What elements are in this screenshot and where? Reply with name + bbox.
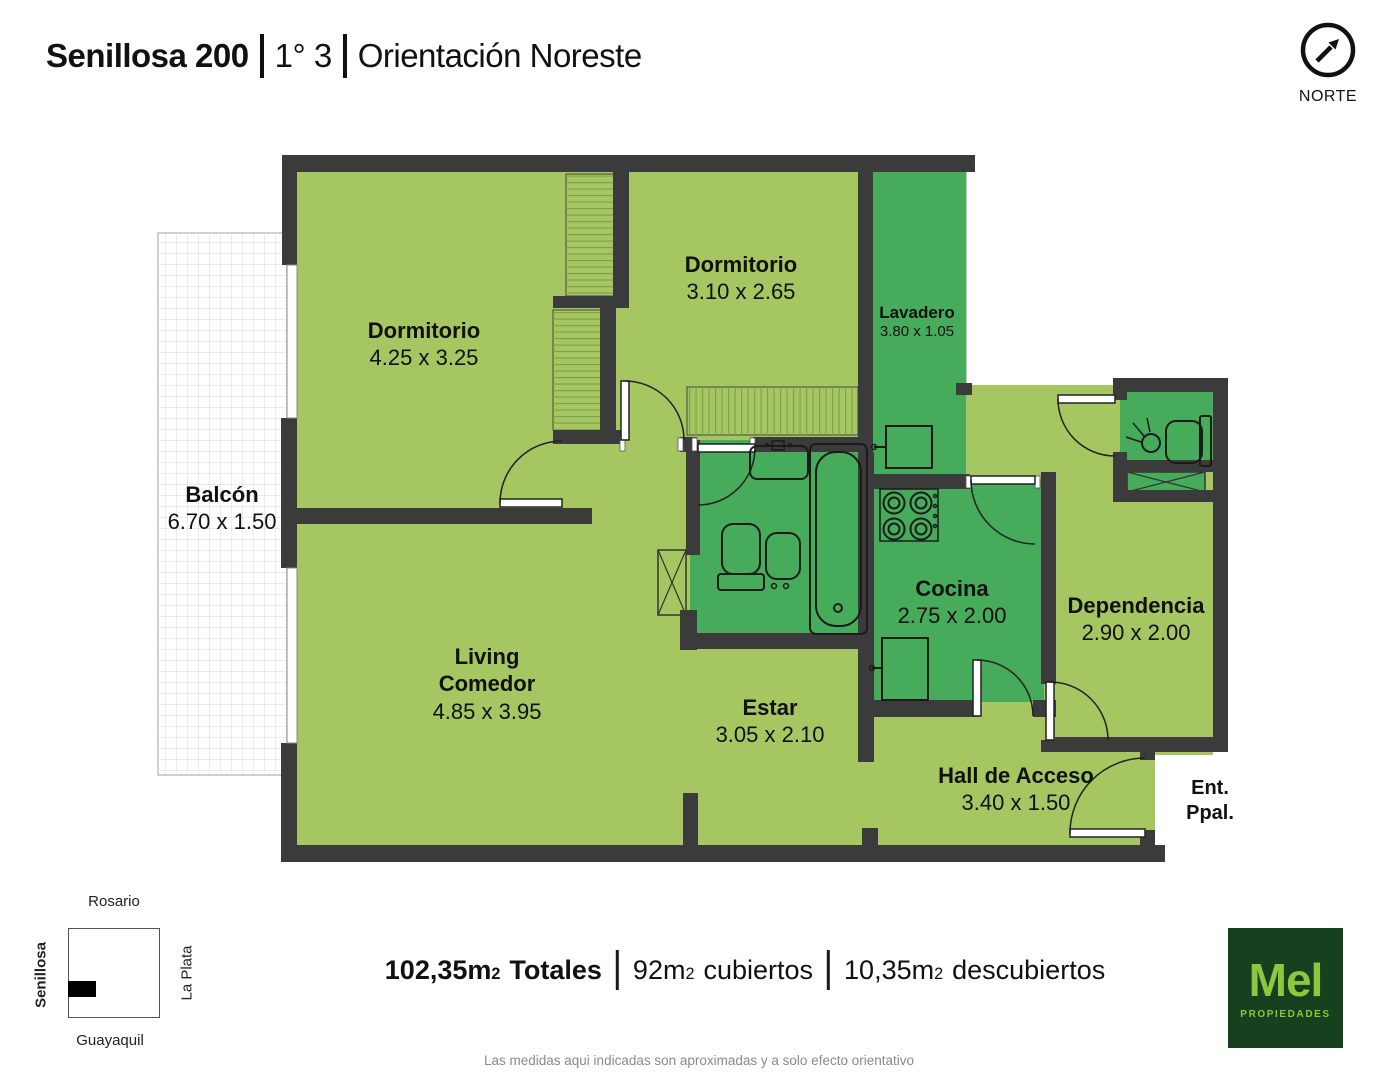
area-total: 102,35m2Totales xyxy=(385,955,602,986)
laundry-floor xyxy=(866,172,966,474)
patio-outline xyxy=(966,172,1113,388)
map-block-outline xyxy=(68,928,160,1018)
title-divider xyxy=(260,34,264,78)
area-divider xyxy=(616,950,619,990)
agency-logo-tagline: PROPIEDADES xyxy=(1240,1009,1330,1020)
map-street-rosario: Rosario xyxy=(88,893,140,910)
closet-icon xyxy=(566,174,616,296)
closet-x-icon xyxy=(658,550,686,615)
map-street-senillosa: Senillosa xyxy=(33,942,50,1008)
balcony-area xyxy=(158,233,292,775)
area-summary: 102,35m2Totales 92m2cubiertos 10,35m2des… xyxy=(385,950,1105,990)
north-label: NORTE xyxy=(1294,88,1362,106)
title-orientation: Orientación Noreste xyxy=(358,37,642,75)
title-unit: 1° 3 xyxy=(275,37,332,75)
floorplan-drawing xyxy=(150,140,1250,870)
closet-icon xyxy=(553,310,603,430)
area-covered: 92m2cubiertos xyxy=(633,955,813,986)
north-indicator: NORTE xyxy=(1294,20,1362,106)
map-street-guayaquil: Guayaquil xyxy=(76,1032,144,1049)
page-title: Senillosa 200 1° 3 Orientación Noreste xyxy=(46,34,642,78)
map-street-laplata: La Plata xyxy=(179,945,196,1000)
area-divider xyxy=(827,950,830,990)
disclaimer-text: Las medidas aqui indicadas son aproximad… xyxy=(484,1053,914,1068)
window-icon xyxy=(287,568,297,743)
floorplan-flyer: { "header": { "title_bold": "Senillosa 2… xyxy=(0,0,1398,1080)
north-arrow-icon xyxy=(1298,20,1358,80)
agency-logo: Mel PROPIEDADES xyxy=(1228,928,1343,1048)
title-address: Senillosa 200 xyxy=(46,37,249,75)
window-icon xyxy=(287,265,297,418)
closet-x-icon xyxy=(1127,472,1205,492)
area-uncovered: 10,35m2descubiertos xyxy=(844,955,1105,986)
closet-icon xyxy=(687,387,858,435)
agency-logo-name: Mel xyxy=(1249,957,1323,1003)
title-divider xyxy=(343,34,347,78)
map-property-marker xyxy=(68,981,96,997)
